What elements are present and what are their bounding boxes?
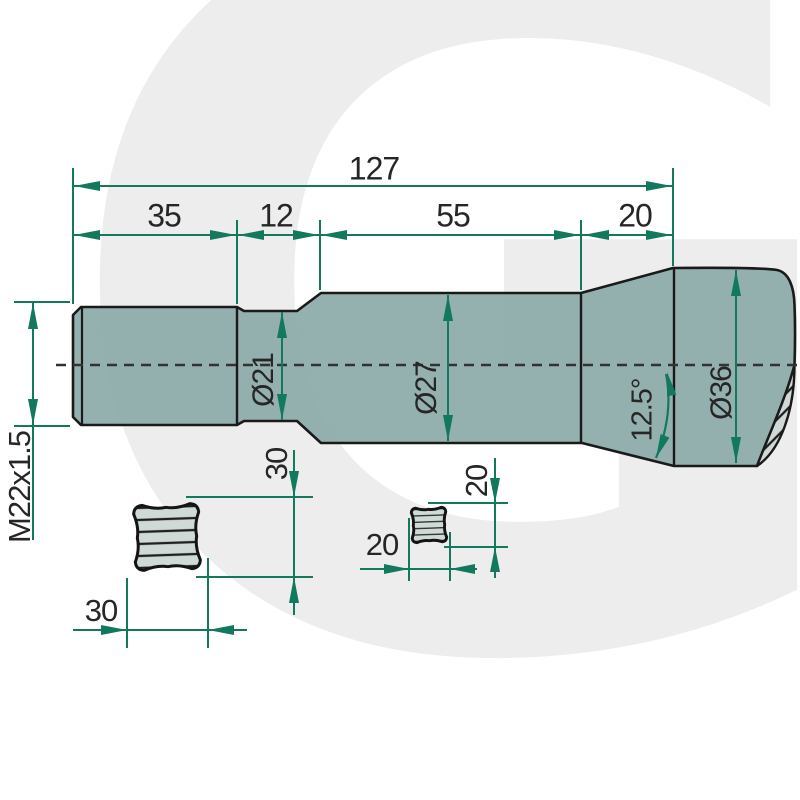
section2-height-label: 20 <box>459 465 495 497</box>
dim-neck-length-label: 12 <box>259 198 293 235</box>
cross-section-large <box>107 477 227 597</box>
dia-body-label: Ø27 <box>410 361 444 415</box>
technical-drawing-page: G <box>0 0 800 800</box>
dim-body-length-label: 55 <box>436 198 470 235</box>
section1-width-label: 30 <box>85 593 117 629</box>
dim-cone-length-label: 20 <box>618 198 652 235</box>
cone-angle-label: 12.5° <box>627 378 660 441</box>
thread-spec-label: M22x1.5 <box>2 431 38 543</box>
shaft-drawing-svg <box>0 0 800 800</box>
section2-width-label: 20 <box>366 527 398 563</box>
dim-total-length-label: 127 <box>349 151 399 188</box>
dia-end-label: Ø36 <box>705 366 739 420</box>
dia-neck-label: Ø21 <box>247 353 281 407</box>
dim-thread-length-label: 35 <box>147 198 181 235</box>
section1-height-label: 30 <box>259 448 295 480</box>
